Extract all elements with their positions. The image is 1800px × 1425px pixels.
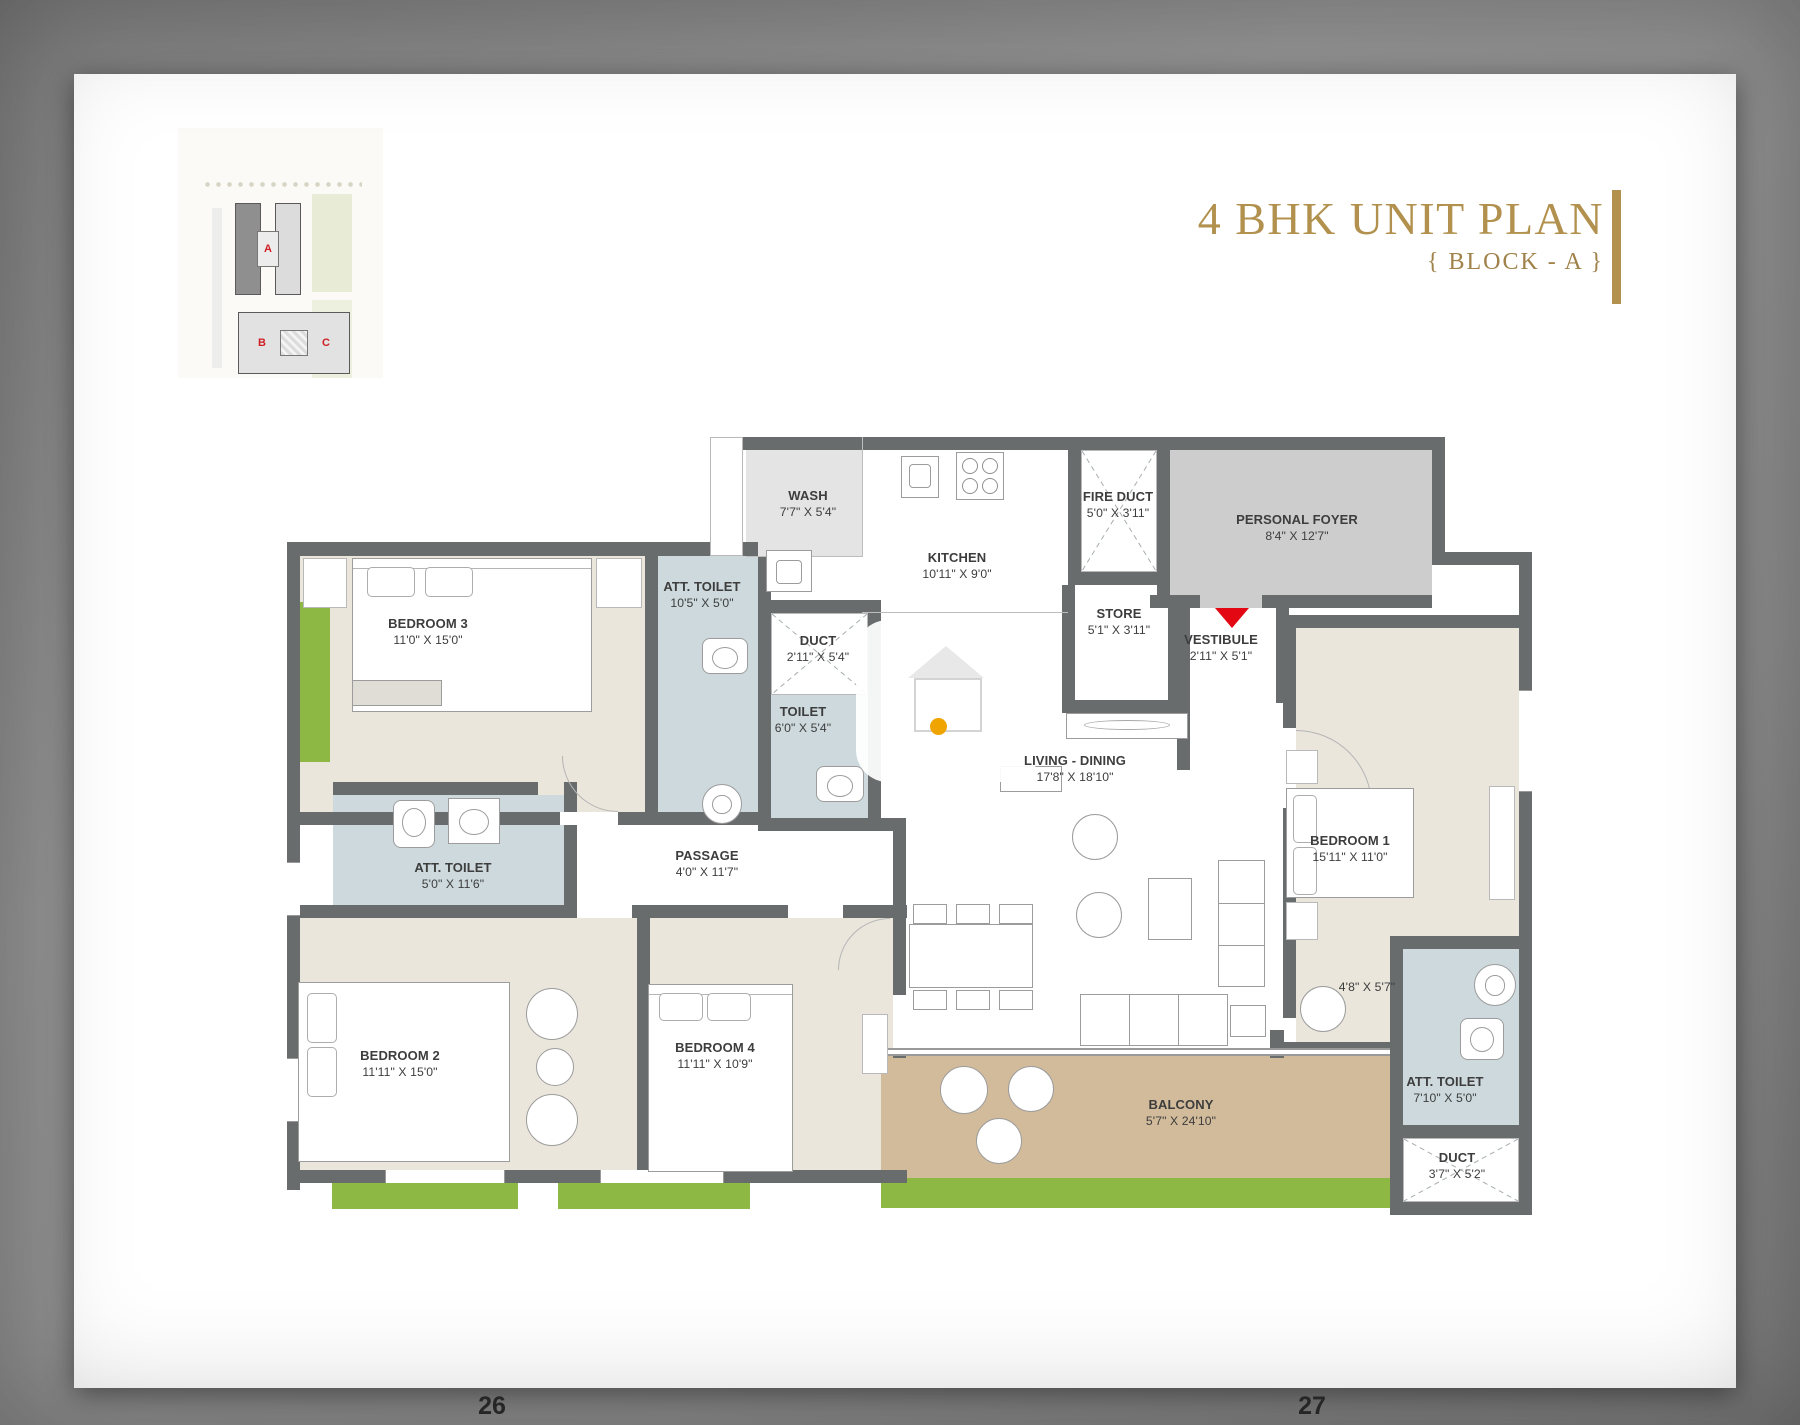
dresser-icon	[352, 680, 442, 706]
block-b-label: B	[258, 337, 266, 349]
planter-balcony	[881, 1178, 1390, 1208]
side-table-icon	[1230, 1005, 1266, 1037]
nightstand-icon	[1286, 750, 1318, 784]
bed-icon	[648, 984, 793, 1172]
room-label-wash: WASH7'7" X 5'4"	[780, 488, 836, 520]
toilet-icon	[393, 800, 435, 848]
wall	[1519, 552, 1532, 1215]
room-label-passage: PASSAGE4'0" X 11'7"	[675, 848, 738, 880]
page-number-right: 27	[1298, 1392, 1326, 1421]
dining-chair-icon	[913, 990, 947, 1010]
room-label-balcony: BALCONY5'7" X 24'10"	[1146, 1097, 1216, 1129]
wall	[1403, 1125, 1519, 1138]
balcony-planter-icon	[976, 1118, 1022, 1164]
armchair-icon	[526, 988, 578, 1040]
room-label-living-dining: LIVING - DINING17'8" X 18'10"	[1024, 753, 1126, 785]
kitchen-sink-icon	[901, 456, 939, 498]
dressing-dimension-label: 4'8" X 5'7"	[1339, 980, 1395, 996]
wall	[564, 782, 577, 905]
shoe-bench-icon	[1066, 713, 1188, 739]
service-niche	[710, 437, 743, 556]
room-label-att-toilet-bed1: ATT. TOILET7'10" X 5'0"	[1406, 1074, 1483, 1106]
door-opening	[893, 995, 906, 1055]
basin-icon	[702, 784, 742, 824]
balcony-planter-icon	[940, 1066, 988, 1114]
dining-chair-icon	[956, 990, 990, 1010]
wall	[1396, 1202, 1532, 1215]
room-label-store: STORE5'1" X 3'11"	[1088, 606, 1150, 638]
wall	[333, 782, 538, 795]
entry-arrow-icon	[1215, 608, 1249, 628]
room-label-fire-duct: FIRE DUCT5'0" X 3'11"	[1083, 489, 1153, 521]
window-opening	[385, 1170, 505, 1183]
nightstand-icon	[1286, 902, 1318, 940]
accent-chair-icon	[1072, 814, 1118, 860]
wardrobe-icon	[1489, 786, 1515, 900]
wall	[1168, 595, 1181, 713]
toilet-icon	[1460, 1018, 1504, 1060]
green-patch	[312, 194, 352, 292]
room-label-bedroom2: BEDROOM 211'11" X 15'0"	[360, 1048, 440, 1080]
wash-basin-icon	[766, 550, 812, 592]
planter-bottom-1	[332, 1183, 518, 1209]
wall	[758, 818, 881, 831]
wall	[1062, 700, 1182, 713]
basin-counter-icon	[448, 798, 500, 844]
room-label-vestibule: VESTIBULE2'11" X 5'1"	[1184, 632, 1258, 664]
wall	[645, 556, 658, 825]
wall	[1432, 437, 1445, 565]
door-opening	[577, 905, 632, 918]
room-label-bedroom3: BEDROOM 311'0" X 15'0"	[388, 616, 468, 648]
photo-background: A B C 4 BHK UNIT PLAN { BLOCK - A }	[0, 0, 1800, 1425]
door-opening	[560, 812, 618, 825]
coffee-table-icon	[1148, 878, 1192, 940]
trees-row	[202, 180, 362, 190]
wall	[758, 556, 771, 830]
planter-bottom-2	[558, 1183, 750, 1209]
block-c-label: C	[322, 337, 330, 349]
wall	[1068, 572, 1170, 585]
accent-chair-icon	[1076, 892, 1122, 938]
wall	[1283, 615, 1532, 628]
balcony-sliding-window	[862, 1048, 1390, 1056]
room-label-bedroom4: BEDROOM 411'11" X 10'9"	[675, 1040, 755, 1072]
title-accent-bar	[1612, 190, 1621, 304]
road-strip	[212, 208, 222, 368]
wall	[1390, 936, 1519, 949]
room-label-att-toilet-bed2: ATT. TOILET5'0" X 11'6"	[414, 860, 491, 892]
wall	[287, 1170, 907, 1183]
dining-table-icon	[909, 924, 1033, 988]
balcony-planter-icon	[1008, 1066, 1054, 1112]
room-label-att-toilet-bed3: ATT. TOILET10'5" X 5'0"	[663, 579, 740, 611]
side-table-icon	[536, 1048, 574, 1086]
dining-chair-icon	[999, 990, 1033, 1010]
window-opening	[1519, 690, 1532, 792]
dining-chair-icon	[956, 904, 990, 924]
sofa-icon	[1080, 994, 1228, 1046]
page-title: 4 BHK UNIT PLAN	[1198, 192, 1604, 245]
block-bc-core	[280, 330, 308, 356]
logo-house-shape	[914, 678, 982, 732]
sofa-icon	[1218, 860, 1265, 987]
room-label-personal-foyer: PERSONAL FOYER8'4" X 12'7"	[1236, 512, 1358, 544]
room-label-kitchen: KITCHEN10'11" X 9'0"	[922, 550, 991, 582]
title-block: 4 BHK UNIT PLAN { BLOCK - A }	[1198, 192, 1604, 276]
room-label-duct-corner: DUCT3'7" X 5'2"	[1429, 1150, 1485, 1182]
room-label-bedroom1: BEDROOM 115'11" X 11'0"	[1310, 833, 1390, 865]
wall	[1432, 552, 1532, 565]
stove-icon	[956, 452, 1004, 500]
nightstand-icon	[596, 558, 642, 608]
door-opening	[788, 905, 843, 918]
page-subtitle: { BLOCK - A }	[1198, 249, 1604, 276]
room-label-duct-kitchen: DUCT2'11" X 5'4"	[787, 633, 849, 665]
wall	[740, 437, 1445, 450]
toilet-icon	[816, 766, 864, 802]
wall	[1390, 936, 1403, 1215]
dining-chair-icon	[999, 904, 1033, 924]
wall	[287, 542, 758, 556]
wall	[1062, 585, 1075, 713]
builder-logo-watermark	[856, 620, 1040, 782]
wall	[287, 812, 771, 825]
dining-chair-icon	[913, 904, 947, 924]
partition-line	[862, 437, 863, 557]
nightstand-icon	[303, 558, 347, 608]
key-plan-block-a: A	[235, 203, 301, 295]
logo-roof-shape	[908, 646, 984, 678]
block-a-label: A	[264, 243, 272, 255]
wall	[1068, 437, 1081, 585]
wall	[1262, 595, 1432, 608]
toilet-icon	[702, 638, 748, 674]
partition-line	[862, 612, 1068, 613]
wardrobe-icon	[862, 1014, 888, 1074]
room-label-toilet: TOILET6'0" X 5'4"	[775, 704, 831, 736]
window-opening	[287, 862, 300, 916]
marker-dot-icon	[930, 718, 947, 735]
armchair-icon	[526, 1094, 578, 1146]
basin-icon	[1474, 964, 1516, 1006]
wall	[868, 818, 906, 831]
wall	[1276, 608, 1289, 703]
key-plan-block-bc: B C	[238, 312, 350, 374]
page-number-left: 26	[478, 1392, 506, 1421]
